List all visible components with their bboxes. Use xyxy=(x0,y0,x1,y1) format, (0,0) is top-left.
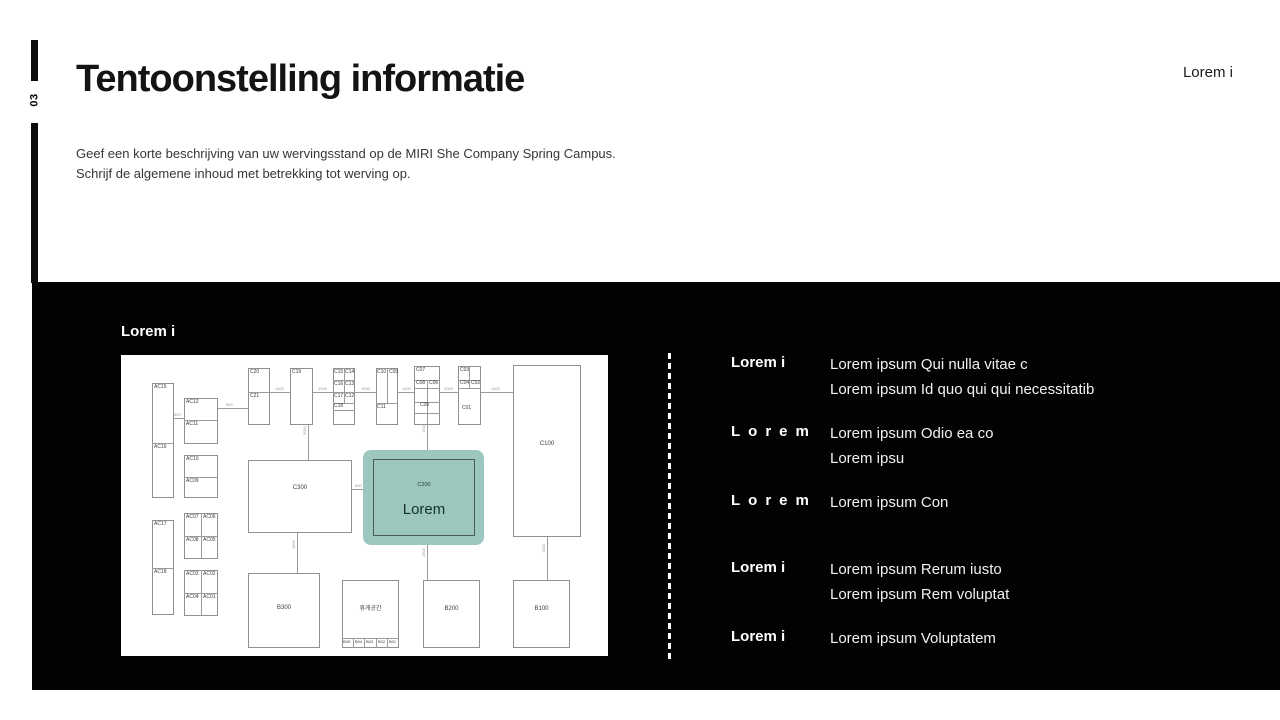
legend-entry-desc-line: Lorem ipsum Odio ea co xyxy=(830,421,993,446)
room-divider-line xyxy=(458,388,481,389)
legend-entry-desc: Lorem ipsum Voluptatem xyxy=(830,626,996,651)
legend-entry-desc: Lorem ipsum Qui nulla vitae c Lorem ipsu… xyxy=(830,352,1094,402)
floorplan-connector-line xyxy=(427,545,428,580)
room-label: C16 xyxy=(334,382,343,387)
legend-entry-label: Lorem i xyxy=(731,559,785,576)
room-box xyxy=(373,459,475,536)
room-label: AC01 xyxy=(203,595,216,600)
room-label: AC17 xyxy=(154,522,167,527)
content-panel: Lorem i AC15AC16AC12AC11AC10AC09AC07AC06… xyxy=(32,282,1280,690)
room-label: C14 xyxy=(345,370,354,375)
room-label: 1000 xyxy=(491,387,500,391)
room-divider-line xyxy=(201,570,202,616)
room-label: C03 xyxy=(460,368,469,373)
room-box xyxy=(152,383,174,498)
legend-entry: Lorem Lorem ipsum Odio ea co Lorem ipsu xyxy=(731,421,1271,481)
description-line-1: Geef een korte beschrijving van uw wervi… xyxy=(76,146,616,161)
room-divider-line xyxy=(353,638,354,648)
room-label: B02 xyxy=(378,640,385,644)
room-label: C07 xyxy=(416,368,425,373)
room-label: 800 xyxy=(355,484,362,488)
room-label: AC08 xyxy=(186,538,199,543)
room-label: Lorem xyxy=(373,502,475,517)
legend-entry-label: Lorem i xyxy=(731,354,785,371)
room-label: AC16 xyxy=(154,445,167,450)
room-label: C02 xyxy=(471,381,480,386)
room-label: 1500 xyxy=(292,540,296,549)
room-label: AC11 xyxy=(186,422,198,427)
room-label: C20 xyxy=(250,370,259,375)
room-label: 1000 xyxy=(361,387,370,391)
room-label: C09 xyxy=(389,370,398,375)
room-label: C10 xyxy=(377,370,386,375)
legend-entry-desc: Lorem ipsum Con xyxy=(830,490,948,515)
legend-entry-label: Lorem i xyxy=(731,628,785,645)
room-label: 1000 xyxy=(444,387,453,391)
legend-entry: Lorem i Lorem ipsum Voluptatem xyxy=(731,626,1271,686)
room-label: AC12 xyxy=(186,400,199,405)
room-divider-line xyxy=(387,638,388,648)
room-label: C12 xyxy=(345,394,354,399)
room-label: B05 xyxy=(343,640,350,644)
room-box xyxy=(248,460,352,533)
room-label: AC10 xyxy=(186,457,199,462)
slide: 03 Tentoonstelling informatie Geef een k… xyxy=(0,0,1280,720)
room-label: AC15 xyxy=(154,385,167,390)
legend-entry-desc-line: Lorem ipsum Rerum iusto xyxy=(830,557,1009,582)
room-label: 1000 xyxy=(318,387,327,391)
room-label: C05 xyxy=(420,403,429,408)
floorplan: AC15AC16AC12AC11AC10AC09AC07AC06AC08AC05… xyxy=(121,355,608,656)
room-label: C04 xyxy=(460,381,469,386)
room-label: AC02 xyxy=(203,572,216,577)
room-label: C06 xyxy=(429,381,438,386)
room-label: AC04 xyxy=(186,595,199,600)
room-box xyxy=(423,580,480,648)
room-label: C13 xyxy=(345,382,354,387)
floorplan-section-label: Lorem i xyxy=(121,323,175,340)
page-title: Tentoonstelling informatie xyxy=(76,58,524,101)
room-label: C15 xyxy=(334,370,343,375)
floorplan-connector-line xyxy=(218,408,248,409)
room-label: B01 xyxy=(389,640,396,644)
legend-entry: Lorem Lorem ipsum Con xyxy=(731,490,1271,550)
room-label: C21 xyxy=(250,394,259,399)
legend-entry: Lorem i Lorem ipsum Qui nulla vitae c Lo… xyxy=(731,352,1271,412)
room-label: C17 xyxy=(334,394,343,399)
room-label: B100 xyxy=(513,606,570,612)
legend-entry-desc: Lorem ipsum Rerum iusto Lorem ipsum Rem … xyxy=(830,557,1009,607)
room-label: C11 xyxy=(377,405,386,410)
room-label: C300 xyxy=(248,485,352,491)
room-divider-line xyxy=(201,513,202,559)
room-label: 휴게공간 xyxy=(342,606,399,612)
dotted-divider xyxy=(668,353,671,661)
room-label: AC09 xyxy=(186,479,199,484)
room-label: 1000 xyxy=(275,387,284,391)
legend-entry-label: Lorem xyxy=(731,492,817,509)
accent-bar-bottom xyxy=(31,123,38,283)
legend-entry-desc-line: Lorem ipsum Con xyxy=(830,490,948,515)
legend-entry-desc-line: Lorem ipsum Voluptatem xyxy=(830,626,996,651)
room-label: 5000 xyxy=(303,426,307,435)
room-divider-line xyxy=(333,410,355,411)
room-label: 1000 xyxy=(542,544,546,553)
description-line-2: Schrijf de algemene inhoud met betrekkin… xyxy=(76,166,411,181)
room-label: B04 xyxy=(355,640,362,644)
room-label: 600 xyxy=(226,403,233,407)
room-label: C19 xyxy=(292,370,301,375)
legend-entry-desc-line: Lorem ipsum Id quo qui qui necessitatib xyxy=(830,377,1094,402)
legend-entry-desc-line: Lorem ipsu xyxy=(830,446,993,471)
room-divider-line xyxy=(376,638,377,648)
floorplan-connector-line xyxy=(308,425,309,460)
room-label: C200 xyxy=(373,483,475,489)
legend-entry-desc: Lorem ipsum Odio ea co Lorem ipsu xyxy=(830,421,993,471)
header-right-label: Lorem i xyxy=(1183,64,1233,81)
floorplan-connector-line xyxy=(297,533,298,573)
room-divider-line xyxy=(364,638,365,648)
room-label: AC07 xyxy=(186,515,199,520)
room-label: C100 xyxy=(513,441,581,447)
room-label: B03 xyxy=(366,640,373,644)
legend-entry-desc-line: Lorem ipsum Qui nulla vitae c xyxy=(830,352,1094,377)
floorplan-connector-line xyxy=(547,537,548,580)
room-label: AC03 xyxy=(186,572,199,577)
room-label: 1500 xyxy=(422,424,426,433)
room-label: AC06 xyxy=(203,515,216,520)
floorplan-connector-line xyxy=(174,418,184,419)
room-label: B300 xyxy=(248,605,320,611)
room-label: C18 xyxy=(334,404,343,409)
room-label: 1000 xyxy=(402,387,411,391)
room-label: C01 xyxy=(462,406,471,411)
room-label: AC18 xyxy=(154,570,167,575)
legend-entry: Lorem i Lorem ipsum Rerum iusto Lorem ip… xyxy=(731,557,1271,617)
page-number: 03 xyxy=(21,88,49,113)
floorplan-connector-line xyxy=(427,425,428,450)
room-label: 800 xyxy=(174,413,181,417)
room-box xyxy=(290,368,313,425)
page-description: Geef een korte beschrijving van uw wervi… xyxy=(76,144,616,184)
legend-entry-label: Lorem xyxy=(731,423,817,440)
room-label: 1500 xyxy=(422,548,426,557)
room-label: B200 xyxy=(423,606,480,612)
legend-entry-desc-line: Lorem ipsum Rem voluptat xyxy=(830,582,1009,607)
room-box xyxy=(513,580,570,648)
room-divider-line xyxy=(387,368,388,403)
room-box xyxy=(513,365,581,537)
accent-bar-top xyxy=(31,40,38,81)
room-label: AC05 xyxy=(203,538,216,543)
room-label: C08 xyxy=(416,381,425,386)
